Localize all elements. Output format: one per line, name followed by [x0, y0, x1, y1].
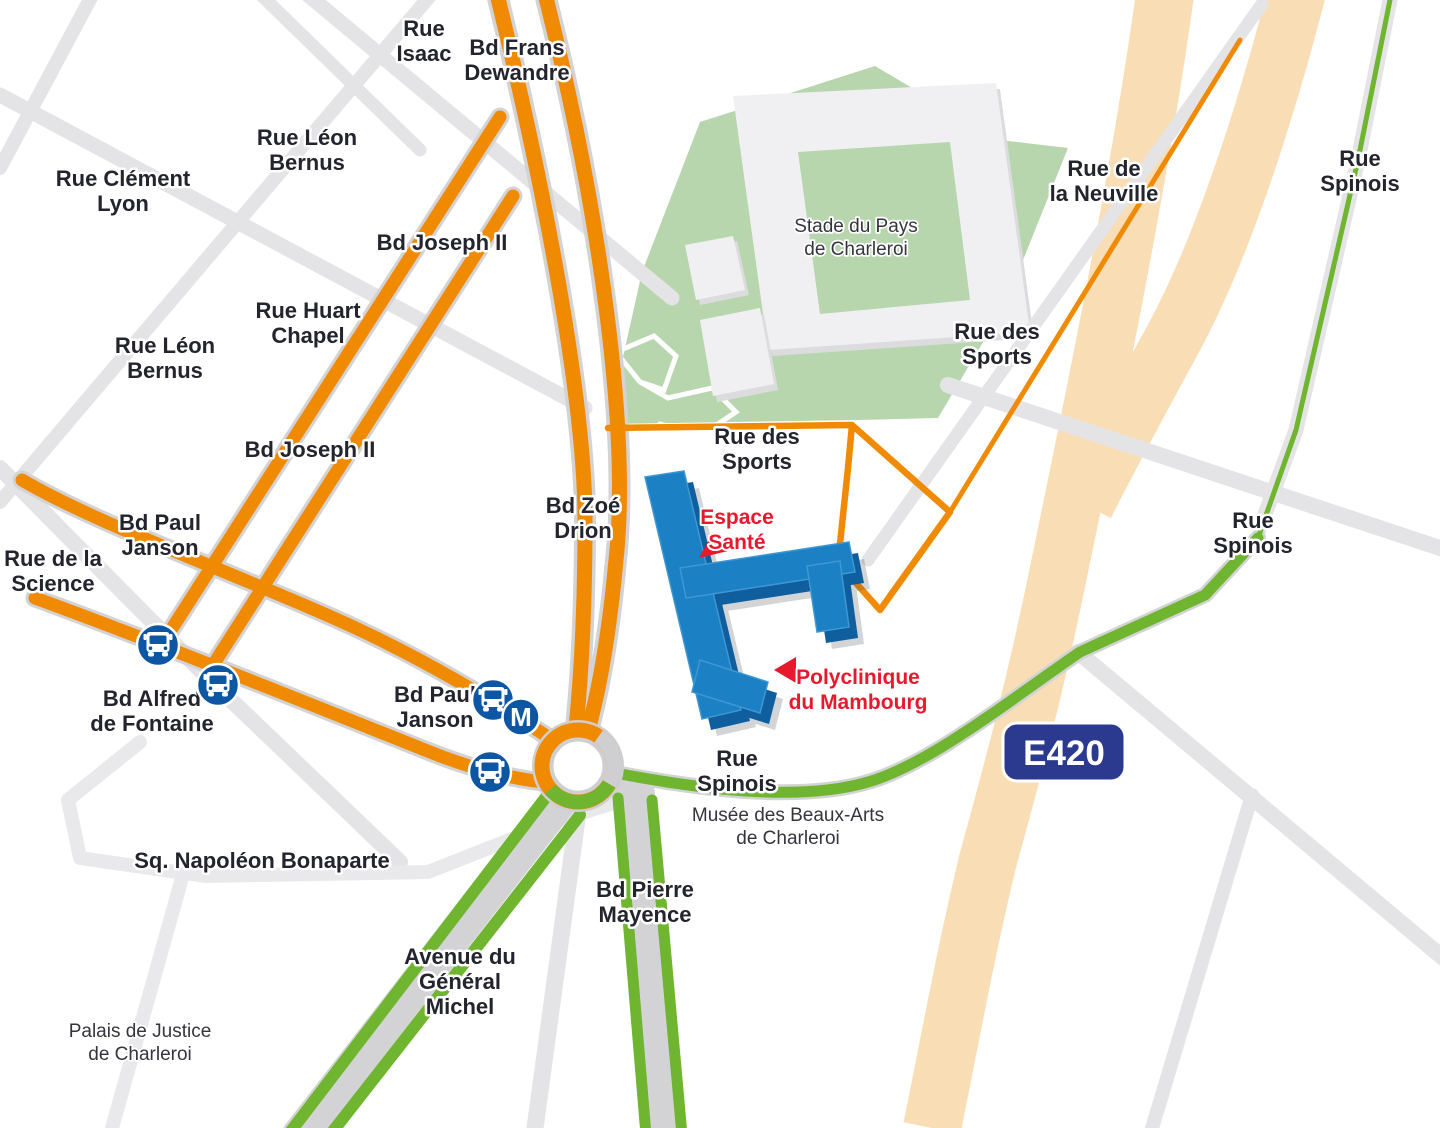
street-label: Rue [1232, 508, 1274, 533]
street-label: Bd Alfred [103, 686, 201, 711]
street-label: Rue [1339, 146, 1381, 171]
street-label: Sq. Napoléon Bonaparte [134, 848, 389, 873]
polyclinique-label: Polyclinique [796, 666, 920, 689]
roundabout [532, 720, 624, 812]
street-label: Avenue du [404, 944, 516, 969]
street-label: Rue Clément [56, 166, 191, 191]
street-label: Bd Paul [119, 510, 201, 535]
street-label: Spinois [1213, 533, 1292, 558]
street-label: Mayence [599, 902, 692, 927]
museum-label: Musée des Beaux-Arts [692, 805, 884, 826]
street-label: Bernus [269, 150, 345, 175]
roundabout-center [552, 740, 604, 792]
street-label: Drion [554, 518, 611, 543]
street-label: Rue des [954, 319, 1040, 344]
street-label: Spinois [1320, 171, 1399, 196]
bus-icon [137, 624, 179, 666]
street-label: Bernus [127, 358, 203, 383]
street-label: Rue Léon [115, 333, 215, 358]
courthouse-label: de Charleroi [88, 1044, 192, 1065]
street-label: Bd Paul [394, 682, 476, 707]
street-label: Isaac [396, 41, 451, 66]
road-gray [1078, 652, 1440, 962]
street-label: Rue [716, 746, 758, 771]
street-label: Spinois [697, 771, 776, 796]
road-gray [948, 385, 1440, 548]
street-label: la Neuville [1050, 181, 1159, 206]
bus-icon [469, 751, 511, 793]
street-label: Michel [426, 994, 494, 1019]
road-gray [1150, 795, 1252, 1128]
street-label: Dewandre [464, 60, 569, 85]
street-label: Janson [396, 707, 473, 732]
street-label: Science [11, 571, 94, 596]
street-label: Rue [403, 16, 445, 41]
stadium-label: Stade du Pays [794, 216, 918, 237]
road-gray [112, 878, 182, 1128]
street-label: Chapel [271, 323, 344, 348]
polyclinique-arrow-icon [774, 657, 796, 683]
metro-icon: M [503, 699, 540, 736]
street-label: Général [419, 969, 501, 994]
street-label: de Fontaine [90, 711, 213, 736]
courthouse-label: Palais de Justice [69, 1021, 212, 1042]
polyclinique-label: du Mambourg [789, 691, 928, 714]
street-label: Sports [962, 344, 1032, 369]
street-label: Bd Joseph II [377, 230, 508, 255]
street-label: Janson [121, 535, 198, 560]
bus-icon [197, 664, 239, 706]
street-label: Rue Huart [255, 298, 361, 323]
street-label: Lyon [97, 191, 149, 216]
espace-sante-label: Espace [700, 506, 774, 529]
map-canvas: E420 Espace Santé Polyclinique du Mambou… [0, 0, 1440, 1128]
highway-badge: E420 [1003, 723, 1125, 781]
street-label: Bd Frans [469, 35, 564, 60]
street-label: Rue de la [4, 546, 103, 571]
street-label: Rue Léon [257, 125, 357, 150]
stadium-label: de Charleroi [804, 239, 908, 260]
charleroi-access-map: E420 Espace Santé Polyclinique du Mambou… [0, 0, 1440, 1128]
museum-label: de Charleroi [736, 828, 840, 849]
street-label: Bd Pierre [596, 877, 694, 902]
espace-sante-label: Santé [708, 531, 765, 554]
e420-badge-label: E420 [1023, 734, 1105, 773]
street-label: Rue de [1067, 156, 1140, 181]
street-label: Sports [722, 449, 792, 474]
street-label: Bd Zoé [546, 493, 621, 518]
street-label: Rue des [714, 424, 800, 449]
street-label: Bd Joseph II [245, 437, 376, 462]
metro-label: M [510, 702, 532, 732]
